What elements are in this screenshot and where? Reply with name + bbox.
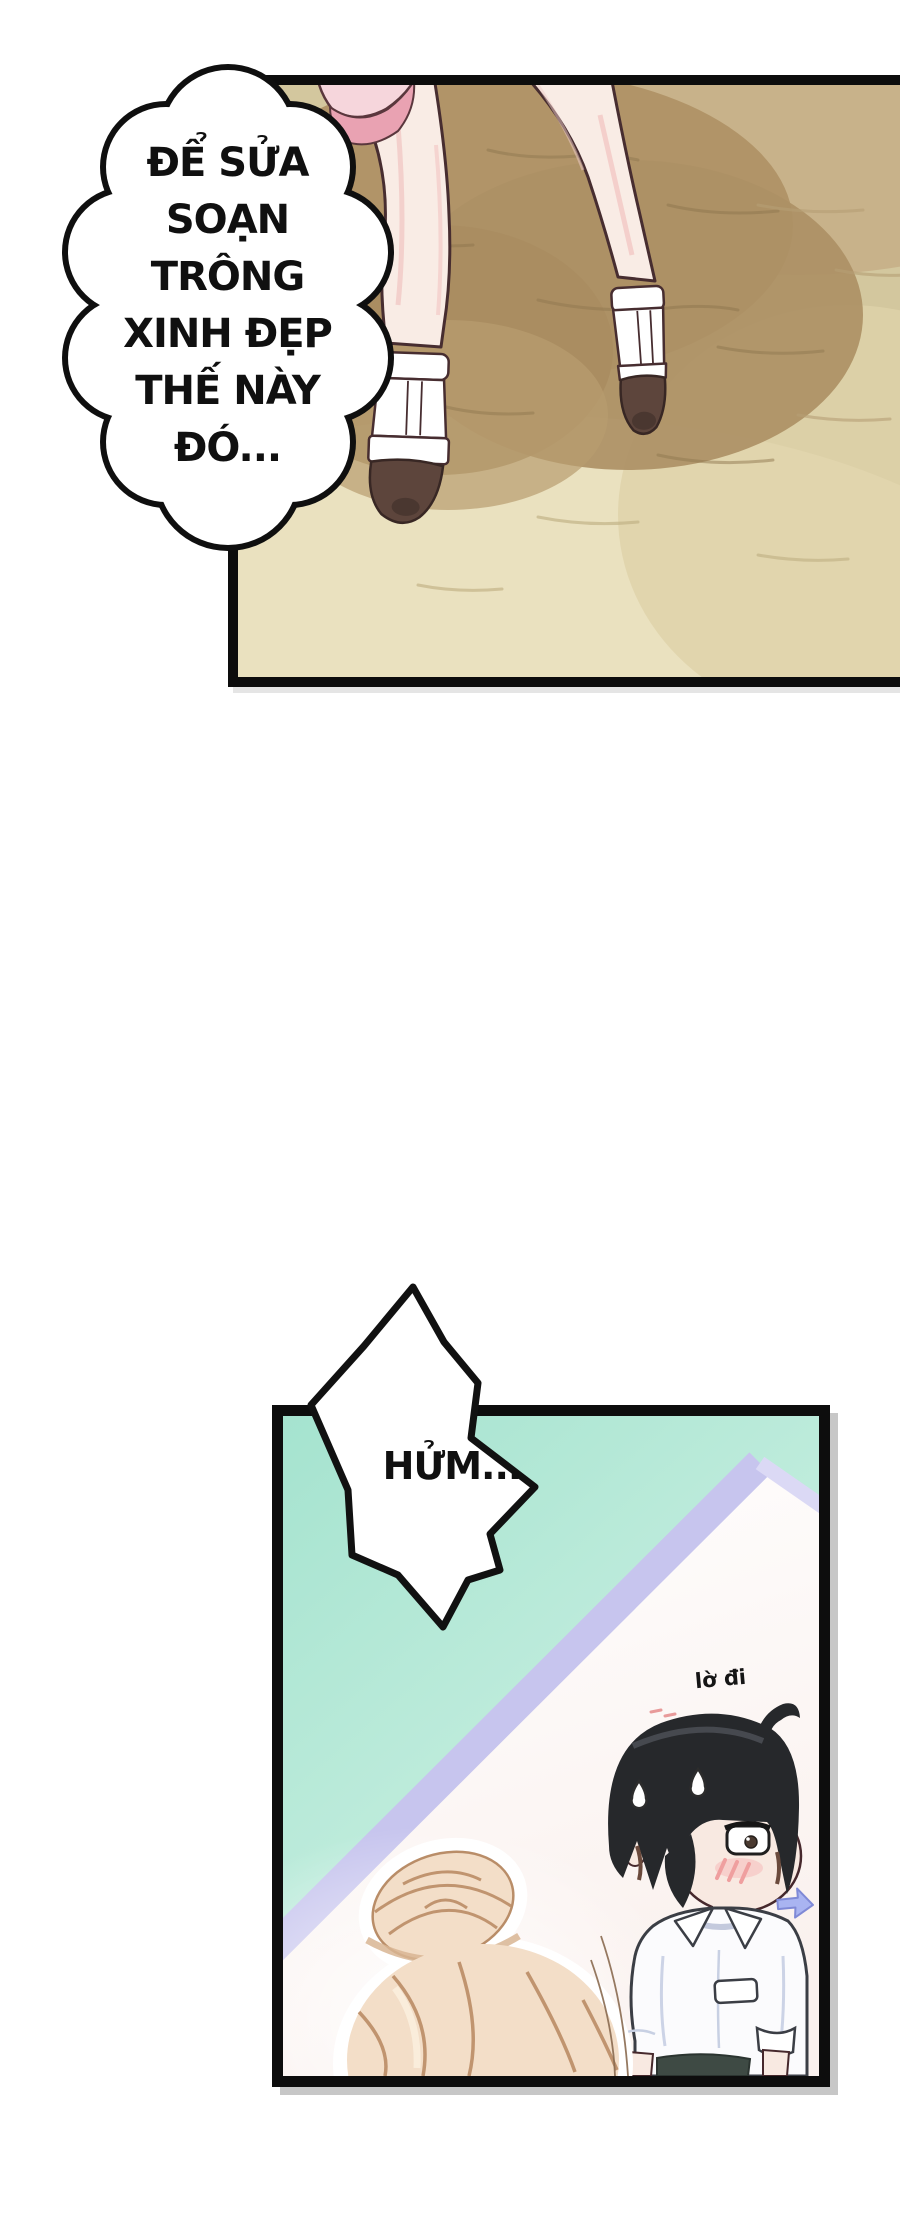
thought-line: SOẠN [40, 192, 415, 249]
thought-bubble: ĐỂ SỬA SOẠN TRÔNG XINH ĐẸP THẾ NÀY ĐÓ... [40, 45, 415, 580]
thought-line: ĐỂ SỬA [40, 135, 415, 192]
shirt [627, 1908, 807, 2076]
thought-line: ĐÓ... [40, 420, 415, 477]
burst-text: HỬM... [342, 1444, 562, 1488]
thought-line: XINH ĐẸP [40, 306, 415, 363]
eye [725, 1824, 770, 1855]
thought-line: TRÔNG [40, 249, 415, 306]
burst-bubble: HỬM... [300, 1278, 545, 1643]
comic-page: ĐỂ SỬA SOẠN TRÔNG XINH ĐẸP THẾ NÀY ĐÓ... [0, 0, 900, 2228]
shirt-pocket [714, 1979, 757, 2003]
thought-line: THẾ NÀY [40, 363, 415, 420]
thought-text: ĐỂ SỬA SOẠN TRÔNG XINH ĐẸP THẾ NÀY ĐÓ... [40, 135, 415, 477]
waistband [657, 2054, 750, 2076]
